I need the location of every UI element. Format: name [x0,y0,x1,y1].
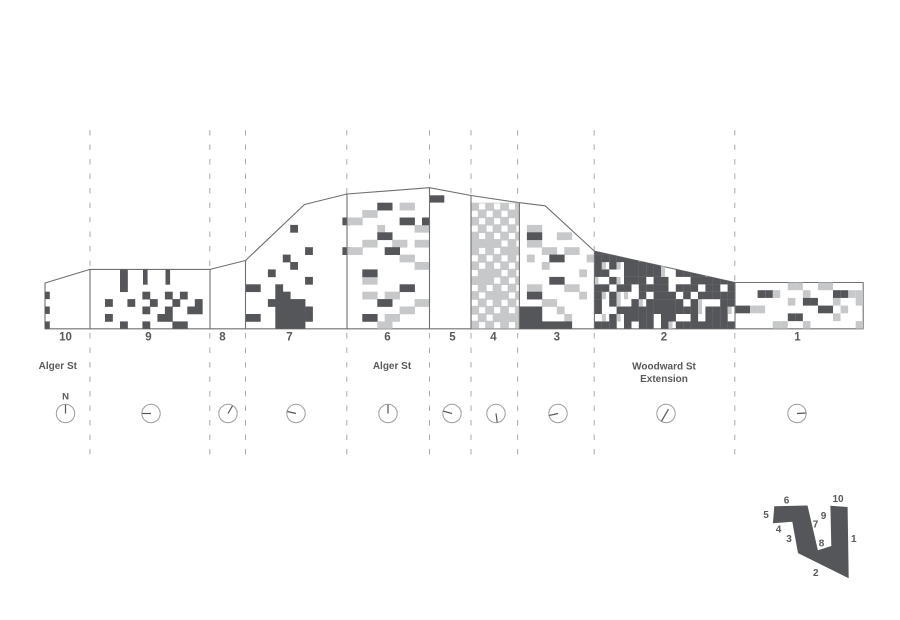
svg-text:5: 5 [763,510,769,521]
svg-text:Alger St: Alger St [373,361,412,372]
svg-text:2: 2 [813,568,819,579]
svg-text:2: 2 [661,332,667,344]
svg-text:Alger St: Alger St [39,361,78,372]
svg-text:10: 10 [59,332,72,344]
svg-text:8: 8 [219,332,226,344]
svg-text:10: 10 [832,494,844,505]
svg-text:6: 6 [384,332,390,344]
svg-text:6: 6 [784,496,790,507]
svg-text:9: 9 [145,332,151,344]
svg-text:Woodward StExtension: Woodward StExtension [632,362,696,386]
svg-text:N: N [62,392,69,403]
svg-text:3: 3 [786,534,792,545]
svg-text:7: 7 [286,332,292,344]
svg-text:4: 4 [490,332,497,344]
svg-text:5: 5 [449,332,456,344]
svg-text:4: 4 [776,525,782,536]
svg-text:9: 9 [821,511,827,522]
svg-text:1: 1 [851,534,857,545]
svg-text:1: 1 [794,332,801,344]
svg-text:3: 3 [554,332,560,344]
svg-text:8: 8 [819,539,825,550]
svg-text:7: 7 [813,520,819,531]
